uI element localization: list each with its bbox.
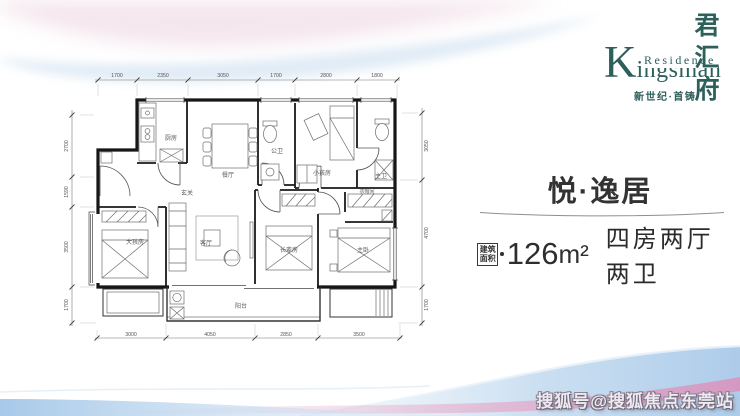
dim-bottom-4: 3500 [353, 332, 365, 338]
area-unit: m² [558, 239, 588, 270]
dim-right-1: 3050 [424, 140, 430, 152]
dim-right-2: 4700 [424, 227, 430, 239]
brand-initial: K [604, 37, 637, 87]
dim-top-6: 1800 [371, 73, 383, 79]
dim-bottom-1: 3000 [125, 332, 137, 338]
dim-top-2: 2350 [157, 73, 169, 79]
room-label-master-bath: 主卫 [375, 172, 387, 180]
room-label-kids-room: 小孩房 [313, 169, 331, 177]
brand-tagline: 新世纪·首铸 [634, 88, 696, 103]
dim-left-2: 1590 [64, 186, 70, 198]
area-label-box: 建筑 面积 [477, 243, 498, 266]
dim-right-3: 1700 [424, 299, 430, 311]
divider-line [478, 211, 726, 219]
brand-logo: Kingsman Residence 君汇府 新世纪·首铸 [588, 8, 728, 112]
layout-text: 四房两厅两卫 [606, 219, 740, 289]
dim-top-4: 1700 [270, 73, 282, 79]
room-label-big-kid-room: 大孩房 [126, 238, 144, 246]
spec-row: 建筑 面积 126m² 四房两厅两卫 [477, 219, 740, 289]
furniture-entry [101, 152, 112, 163]
balcony-walls [103, 287, 392, 321]
room-label-entry: 玄关 [181, 189, 193, 197]
room-label-elder-room: 长辈房 [280, 246, 298, 254]
dim-bottom-2: 4050 [204, 332, 216, 338]
area-label-line1: 建筑 [479, 245, 496, 255]
floorplan-svg: 1700 2350 3050 1700 2800 1800 2700 1590 … [50, 48, 450, 348]
dim-top-5: 2800 [320, 73, 332, 79]
unit-title: 悦·逸居 [472, 168, 728, 210]
area-value: 126 [507, 236, 559, 272]
room-label-dining: 餐厅 [222, 171, 234, 179]
room-label-kitchen: 厨房 [165, 134, 177, 142]
dim-bottom-3: 2850 [280, 332, 292, 338]
room-label-master-room: 主卧 [357, 246, 369, 254]
room-label-guest-bath: 公卫 [271, 148, 283, 155]
room-label-balcony: 阳台 [235, 302, 247, 310]
area-label-line2: 面积 [479, 254, 496, 264]
furniture-dining [203, 124, 257, 168]
dim-left-1: 2700 [64, 140, 70, 152]
dim-top-3: 3050 [217, 73, 229, 79]
dim-top-1: 1700 [111, 73, 123, 79]
room-label-living: 客厅 [200, 239, 212, 247]
dot-separator-icon [500, 252, 503, 256]
watermark: 搜狐号@搜狐焦点东莞站 [536, 387, 734, 412]
room-label-closet: 衣帽间 [359, 188, 374, 195]
furniture-balcony [170, 291, 184, 319]
dim-left-4: 1700 [64, 299, 70, 311]
dim-left-3: 3500 [64, 241, 70, 253]
